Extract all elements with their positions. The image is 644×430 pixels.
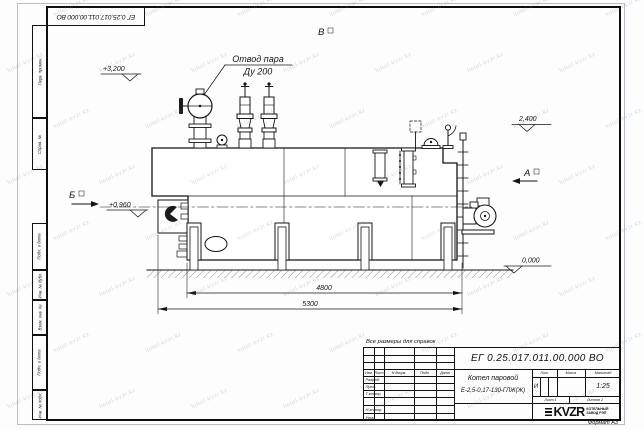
sheets-total: Листов 2 xyxy=(569,396,621,403)
lit-header: Лит. xyxy=(532,369,557,377)
feed-pump xyxy=(462,198,496,234)
sheet-number: Лист 1 xyxy=(532,396,569,403)
elevation-mark-0960 xyxy=(107,210,148,217)
view-label-a: А xyxy=(523,168,530,179)
elevation-text-zero: 0,000 xyxy=(522,258,540,265)
margin-cell-podp-data-1: Подп. и дата xyxy=(32,223,47,270)
view-marker-v xyxy=(328,28,333,33)
safety-valve xyxy=(237,82,253,148)
future-opening xyxy=(410,121,421,148)
title-block: Изм. Лист N докум. Подп. Дата Разраб. Пр… xyxy=(363,347,620,420)
margin-label: Взам. инв. № xyxy=(37,305,42,331)
margin-label: Подп. и дата xyxy=(37,233,42,259)
row-label-utv: Утв. xyxy=(364,413,386,421)
support-leg xyxy=(275,223,289,270)
mass-header: Масса xyxy=(557,369,585,377)
company-line2: ЗАВОД РЭП xyxy=(586,412,608,416)
water-level-gauge xyxy=(373,150,387,187)
grid-line xyxy=(540,377,541,396)
drawing-sheet: Отвод пара Ду 200 В Б А +3,200 2,400 +0,… xyxy=(0,0,644,430)
document-designation: ЕГ 0.25.017.011.00.000 ВО xyxy=(454,348,621,369)
margin-cell-inv-podl: Инв. № подл. xyxy=(32,390,47,420)
dome-valve xyxy=(422,139,440,149)
column-header-data: Дата xyxy=(436,369,454,376)
grid-line xyxy=(364,355,454,356)
grid-line xyxy=(548,377,549,396)
support-leg xyxy=(358,223,372,270)
ground-hatch xyxy=(147,270,513,278)
margin-label: Инв. № дубл. xyxy=(37,272,42,298)
rotated-designation-stamp: ЕГ 0.25.017.011.00.000 ВО xyxy=(47,7,145,26)
dimension-text-5300: 5300 xyxy=(302,301,318,308)
dimension-text-4800: 4800 xyxy=(316,285,332,292)
lit-value: И xyxy=(532,377,540,396)
product-name: Котел паровой xyxy=(454,371,532,385)
logo-text: KVZR xyxy=(554,405,585,419)
company-name: КОТЕЛЬНЫЙ ЗАВОД РЭП xyxy=(586,408,608,416)
grid-line xyxy=(414,348,415,421)
view-label-v: В xyxy=(318,27,325,38)
grid-line xyxy=(364,362,454,363)
scale-header: Масштаб xyxy=(585,369,621,377)
elevation-text-3200: +3,200 xyxy=(103,66,125,73)
steam-outlet-valve xyxy=(179,89,212,148)
view-label-b: Б xyxy=(69,190,75,201)
column-header-podp: Подп. xyxy=(414,369,436,376)
support-leg xyxy=(441,223,455,270)
scale-value: 1:25 xyxy=(585,377,621,396)
sight-fitting xyxy=(217,135,227,148)
margin-label: Инв. № подл. xyxy=(37,392,42,418)
row-label-razrab: Разраб. xyxy=(364,376,386,383)
column-header-doc: N докум. xyxy=(384,369,414,376)
elevation-mark-3200 xyxy=(101,74,141,81)
safety-valve xyxy=(261,82,277,148)
row-label-nkontr: Н.контр. xyxy=(364,405,386,413)
row-label-tkontr: Т.контр. xyxy=(364,390,386,397)
margin-cell-sprav-no: Справ. № xyxy=(32,118,47,170)
grid-line xyxy=(364,397,454,398)
elevation-text-0960: +0,960 xyxy=(109,202,131,209)
margin-cell-inv-dubl: Инв. № дубл. xyxy=(32,270,47,300)
margin-label: Справ. № xyxy=(37,134,42,153)
manhole xyxy=(205,237,227,252)
grid-line xyxy=(436,348,437,421)
margin-cell-perv-primen: Перв. примен. xyxy=(32,25,47,118)
format-note: Формат А3 xyxy=(540,420,618,426)
logo-grate-icon xyxy=(545,408,552,417)
row-label-prov: Пров. xyxy=(364,383,386,390)
margin-cell-podp-data-2: Подп. и дата xyxy=(32,335,47,390)
margin-label: Подп. и дата xyxy=(37,349,42,375)
reference-note: Все размеры для справок xyxy=(366,339,436,345)
elevation-mark-2400 xyxy=(512,125,551,132)
company-logo: KVZR КОТЕЛЬНЫЙ ЗАВОД РЭП xyxy=(532,403,621,421)
callout-text-line1: Отвод пара xyxy=(232,54,283,64)
rear-ladder xyxy=(458,133,468,268)
column-header-izm: Изм. xyxy=(364,369,374,376)
margin-label: Перв. примен. xyxy=(37,58,42,86)
view-arrow-b xyxy=(72,191,99,207)
lever-fitting xyxy=(443,125,456,149)
column-header-list: Лист xyxy=(374,369,384,376)
burner-unit xyxy=(158,200,188,257)
margin-cell-vzam-inv: Взам. инв. № xyxy=(32,300,47,335)
product-type: Е-2,5-0,17-130-ГЛЖ(Ж) xyxy=(454,384,532,398)
callout-text-line2: Ду 200 xyxy=(243,67,272,77)
elevation-text-2400: 2,400 xyxy=(518,116,537,123)
support-leg xyxy=(187,223,201,270)
